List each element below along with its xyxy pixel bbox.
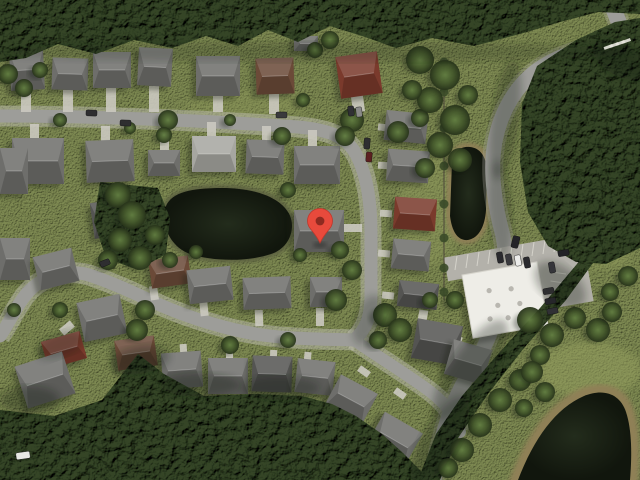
tree-canopy bbox=[468, 413, 492, 437]
roof-facet-dark bbox=[294, 165, 340, 184]
tree-canopy bbox=[273, 127, 291, 145]
car-body bbox=[366, 152, 373, 162]
roof-ridge bbox=[154, 163, 174, 164]
tree-canopy bbox=[32, 62, 48, 78]
roof-ridge bbox=[198, 154, 230, 155]
parked-car bbox=[86, 110, 97, 116]
driveway bbox=[308, 130, 317, 148]
tree-canopy bbox=[296, 93, 310, 107]
parked-car bbox=[120, 120, 131, 126]
house bbox=[0, 148, 28, 198]
roof-facet-dark bbox=[192, 154, 236, 172]
tree-canopy bbox=[488, 388, 512, 412]
aerial-imagery[interactable] bbox=[0, 0, 640, 480]
tree-canopy bbox=[535, 382, 555, 402]
roof-ridge bbox=[6, 259, 24, 260]
roof-facet-light bbox=[192, 136, 236, 154]
house bbox=[0, 238, 30, 284]
roof-facet-dark bbox=[93, 70, 131, 88]
tree-canopy bbox=[331, 241, 349, 259]
hedge-bush bbox=[440, 288, 449, 297]
house bbox=[250, 57, 294, 98]
house bbox=[187, 136, 236, 176]
car-body bbox=[364, 138, 371, 149]
hedge-bush bbox=[440, 264, 449, 273]
tree-canopy bbox=[335, 126, 355, 146]
roof-facet-dark bbox=[86, 160, 135, 183]
roof-facet-dark bbox=[245, 156, 284, 174]
parked-car bbox=[355, 107, 362, 118]
tree-shadow-band bbox=[0, 386, 60, 414]
driveway bbox=[101, 126, 110, 142]
house bbox=[385, 238, 431, 276]
tree-canopy bbox=[224, 114, 236, 126]
tree-canopy bbox=[422, 292, 438, 308]
tree-canopy bbox=[189, 245, 203, 259]
left-pond bbox=[164, 188, 292, 260]
tree-canopy bbox=[118, 201, 146, 229]
roof-ridge bbox=[202, 76, 234, 77]
house bbox=[143, 150, 180, 180]
tree-canopy bbox=[540, 323, 564, 347]
house bbox=[237, 276, 291, 314]
roof-facet-light bbox=[85, 139, 134, 162]
tree-canopy bbox=[448, 148, 472, 172]
tree-canopy bbox=[156, 127, 172, 143]
parked-car bbox=[366, 152, 373, 162]
tree-canopy bbox=[145, 225, 165, 245]
tree-canopy bbox=[128, 246, 152, 270]
tree-shadow-band bbox=[240, 376, 320, 400]
hedge-bush bbox=[440, 200, 449, 209]
roof-ridge bbox=[6, 171, 22, 172]
tree-canopy bbox=[52, 302, 68, 318]
driveway bbox=[382, 291, 395, 299]
house bbox=[289, 146, 340, 188]
tree-canopy bbox=[517, 307, 543, 333]
tree-canopy bbox=[293, 248, 307, 262]
parked-car bbox=[364, 138, 371, 149]
roof-ridge bbox=[99, 70, 125, 71]
roof-facet-light bbox=[294, 146, 340, 165]
tree-canopy bbox=[427, 132, 453, 158]
driveway bbox=[207, 122, 216, 138]
marker-pin-dot bbox=[316, 217, 325, 226]
satellite-map[interactable] bbox=[0, 0, 640, 480]
roof-facet-light bbox=[252, 355, 293, 374]
tree-canopy bbox=[402, 80, 422, 100]
tree-canopy bbox=[108, 228, 132, 252]
roof-facet-dark bbox=[196, 76, 240, 96]
tree-canopy bbox=[618, 266, 638, 286]
tree-canopy bbox=[135, 300, 155, 320]
tree-canopy bbox=[601, 283, 619, 301]
car-body bbox=[120, 120, 131, 126]
roof-facet-light bbox=[242, 276, 291, 294]
tree-canopy bbox=[158, 110, 178, 130]
car-body bbox=[355, 107, 362, 118]
tree-canopy bbox=[325, 289, 347, 311]
tree-canopy bbox=[280, 332, 296, 348]
tree-shadow-band bbox=[160, 373, 240, 397]
roof-facet-dark bbox=[243, 292, 292, 310]
tree-canopy bbox=[515, 399, 533, 417]
hedge-bush bbox=[440, 234, 449, 243]
tree-canopy bbox=[415, 158, 435, 178]
tree-canopy bbox=[126, 319, 148, 341]
house bbox=[181, 266, 234, 309]
house bbox=[46, 57, 88, 94]
car-body bbox=[347, 106, 354, 117]
tree-canopy bbox=[342, 260, 362, 280]
tree-canopy bbox=[162, 252, 178, 268]
tree-canopy bbox=[564, 307, 586, 329]
tree-canopy bbox=[221, 336, 239, 354]
parked-car bbox=[347, 106, 354, 117]
tree-canopy bbox=[53, 113, 67, 127]
roof-facet-light bbox=[208, 358, 248, 376]
tree-canopy bbox=[388, 318, 412, 342]
driveway bbox=[30, 124, 39, 140]
house bbox=[388, 196, 437, 235]
tree-canopy bbox=[440, 105, 470, 135]
house bbox=[191, 56, 240, 100]
parked-car bbox=[276, 112, 287, 118]
tree-canopy bbox=[387, 121, 409, 143]
tree-canopy bbox=[602, 302, 622, 322]
car-body bbox=[276, 112, 287, 118]
roof-ridge bbox=[300, 165, 334, 166]
tree-shadow-band bbox=[0, 42, 640, 62]
driveway bbox=[344, 224, 362, 232]
tree-canopy bbox=[446, 291, 464, 309]
tree-canopy bbox=[458, 85, 478, 105]
roof-facet-dark bbox=[256, 75, 295, 94]
house bbox=[80, 139, 135, 187]
tree-canopy bbox=[430, 60, 460, 90]
tree-canopy bbox=[521, 361, 543, 383]
tree-canopy bbox=[7, 303, 21, 317]
car-body bbox=[86, 110, 97, 116]
tree-canopy bbox=[15, 79, 33, 97]
tree-canopy bbox=[280, 182, 296, 198]
